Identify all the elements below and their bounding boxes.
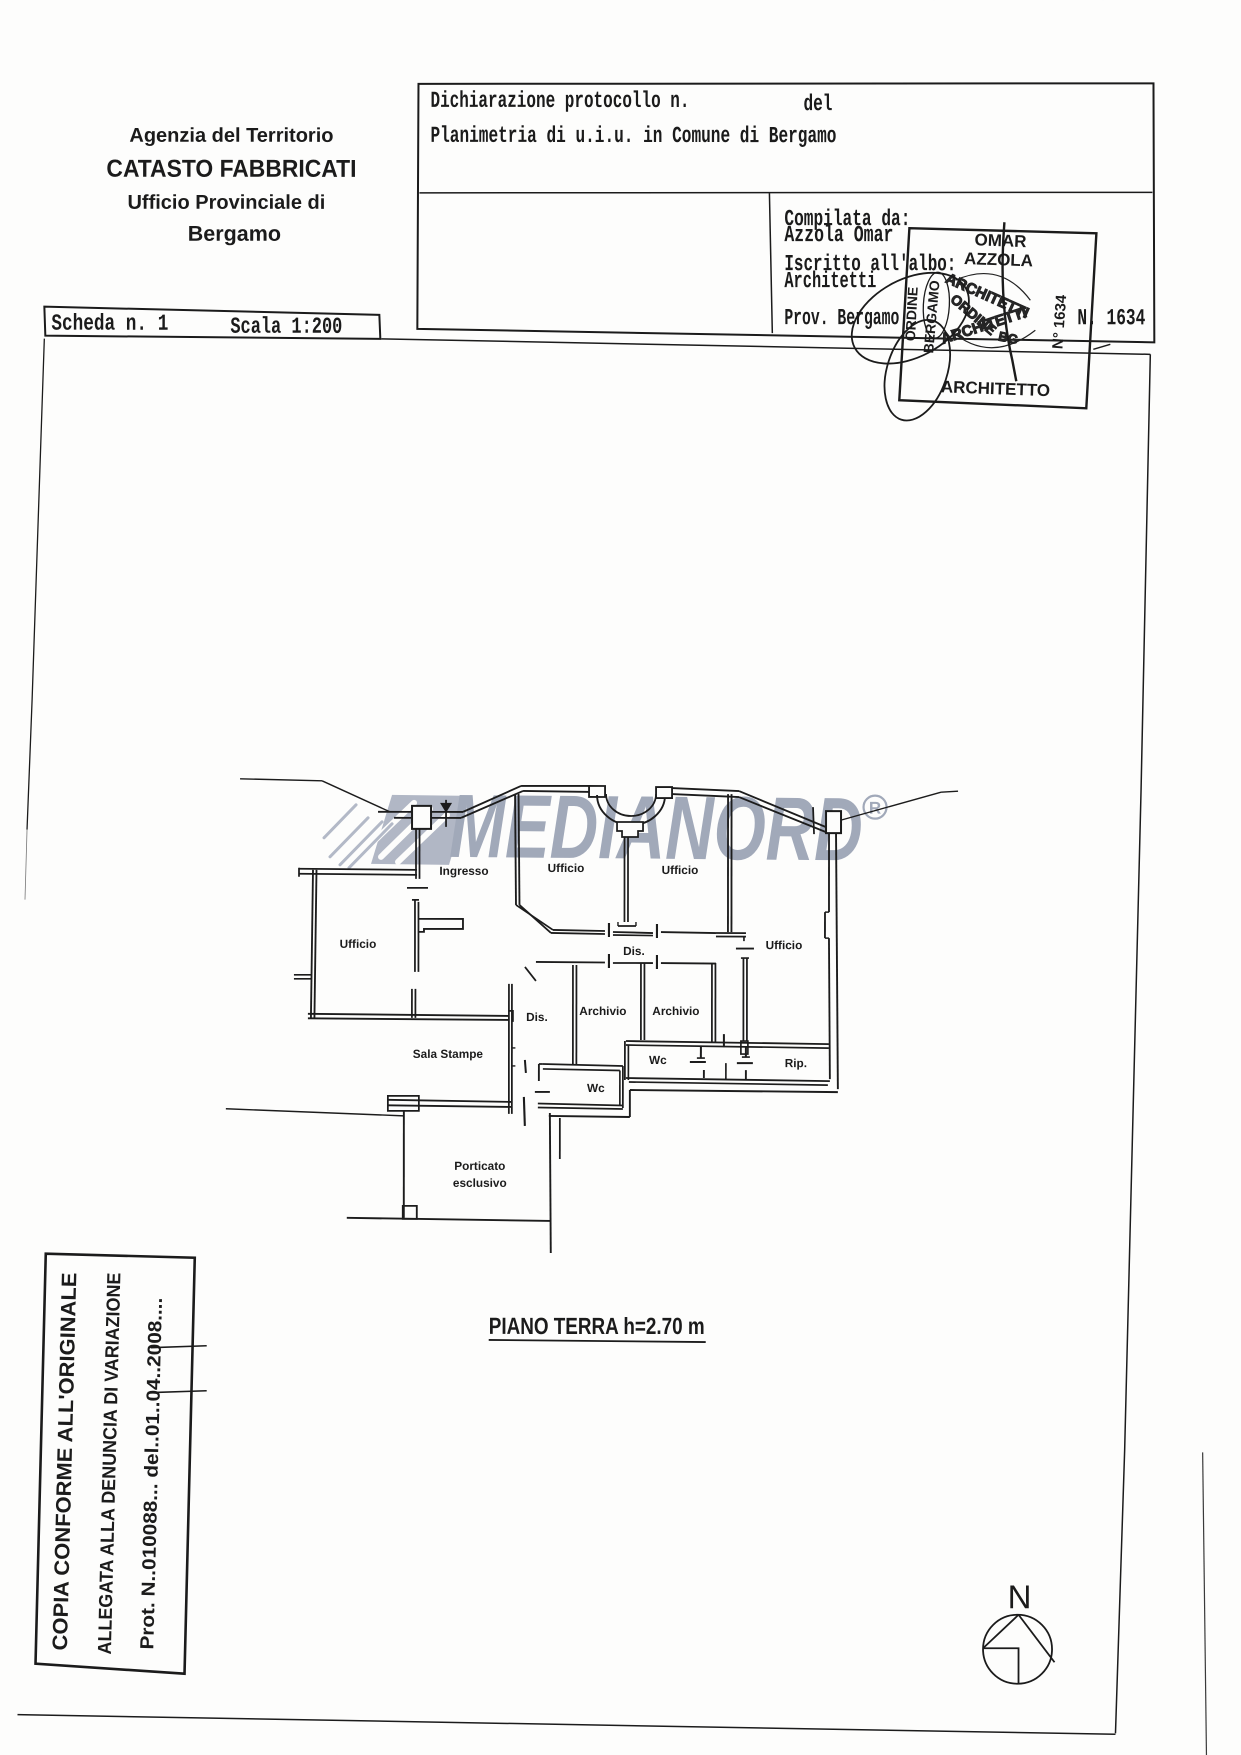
svg-text:del: del <box>803 91 832 117</box>
svg-text:Prov. Bergamo: Prov. Bergamo <box>784 305 899 331</box>
svg-text:Azzola Omar: Azzola Omar <box>784 222 893 248</box>
svg-text:Dis.: Dis. <box>526 1010 548 1024</box>
svg-text:N. 1634: N. 1634 <box>1077 305 1145 331</box>
svg-text:R: R <box>869 799 881 818</box>
svg-text:Rip.: Rip. <box>785 1056 807 1070</box>
svg-text:AZZOLA: AZZOLA <box>964 249 1034 270</box>
svg-text:Dichiarazione protocollo n.: Dichiarazione protocollo n. <box>430 88 689 114</box>
svg-text:CATASTO FABBRICATI: CATASTO FABBRICATI <box>106 156 356 183</box>
svg-text:Ufficio: Ufficio <box>766 938 803 952</box>
svg-text:Agenzia del Territorio: Agenzia del Territorio <box>129 125 333 147</box>
svg-text:Wc: Wc <box>587 1081 605 1095</box>
svg-text:Archivio: Archivio <box>652 1004 699 1018</box>
svg-text:Porticato: Porticato <box>454 1159 505 1173</box>
svg-text:Ufficio: Ufficio <box>548 861 585 875</box>
svg-text:N: N <box>1008 1578 1032 1615</box>
svg-text:Ingresso: Ingresso <box>439 864 488 878</box>
svg-text:Archivio: Archivio <box>579 1004 626 1018</box>
svg-text:OMAR: OMAR <box>974 230 1027 251</box>
svg-text:ARCHITETTO: ARCHITETTO <box>941 377 1051 400</box>
svg-text:Sala Stampe: Sala Stampe <box>413 1047 484 1061</box>
svg-text:Ufficio: Ufficio <box>662 863 699 877</box>
svg-text:Ufficio Provinciale di: Ufficio Provinciale di <box>127 192 325 214</box>
svg-text:Scala 1:200: Scala 1:200 <box>230 314 342 340</box>
svg-text:Bergamo: Bergamo <box>188 222 281 246</box>
svg-text:Scheda n. 1: Scheda n. 1 <box>51 311 168 337</box>
svg-text:esclusivo: esclusivo <box>453 1176 507 1190</box>
svg-text:Architetti: Architetti <box>784 268 876 294</box>
svg-text:Dis.: Dis. <box>623 944 645 958</box>
svg-text:PIANO TERRA h=2.70 m: PIANO TERRA h=2.70 m <box>489 1313 705 1339</box>
svg-text:Planimetria di u.i.u. in Comun: Planimetria di u.i.u. in Comune di Berga… <box>430 123 836 149</box>
svg-text:Ufficio: Ufficio <box>340 937 377 951</box>
svg-text:Wc: Wc <box>649 1053 667 1067</box>
